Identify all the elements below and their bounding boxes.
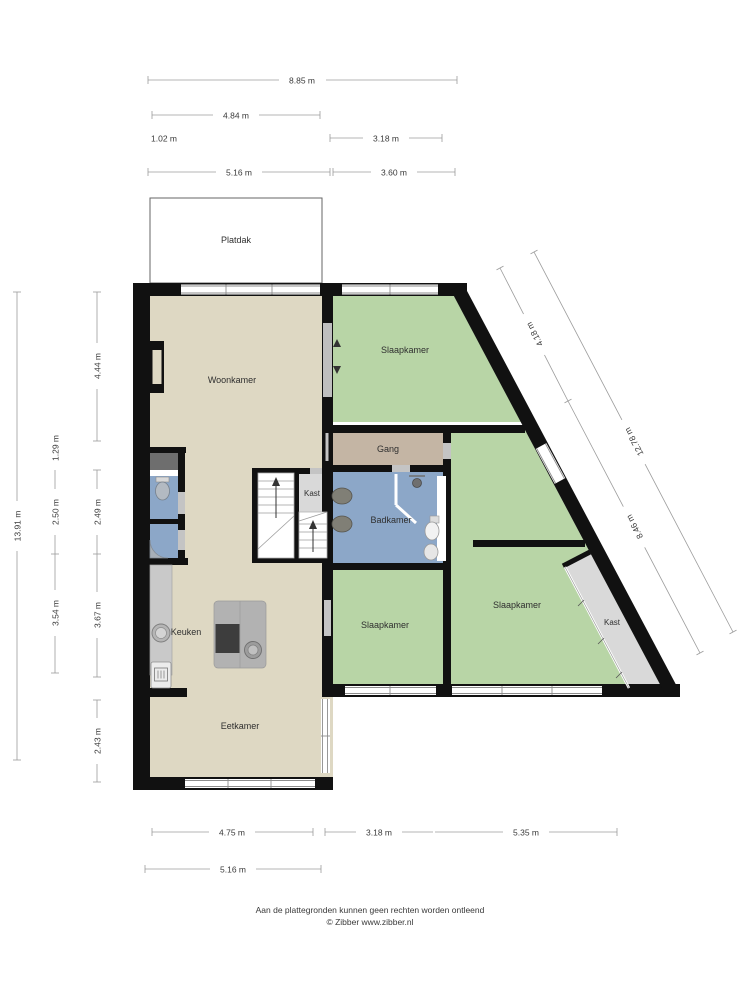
- dimension: 4.75 m: [152, 826, 313, 838]
- utility-closet-dark: [150, 452, 180, 470]
- toilet-icon: [156, 482, 170, 500]
- svg-text:5.16 m: 5.16 m: [220, 865, 246, 875]
- dimension: 5.16 m: [148, 166, 330, 178]
- door-toilet-2: [178, 530, 185, 550]
- slaapkamer-middle-label: Slaapkamer: [361, 620, 409, 630]
- door-dining-bedroom-middle: [324, 600, 331, 636]
- door-hall-bedroom-right: [443, 443, 451, 459]
- wall-toilets-mid: [147, 519, 178, 524]
- svg-text:4.18 m: 4.18 m: [524, 320, 545, 348]
- platdak-area: Platdak: [150, 198, 322, 283]
- svg-text:3.18 m: 3.18 m: [373, 134, 399, 144]
- svg-text:4.84 m: 4.84 m: [223, 111, 249, 121]
- svg-text:2.50 m: 2.50 m: [51, 499, 61, 525]
- dimension: 3.54 m: [49, 554, 61, 673]
- svg-text:3.67 m: 3.67 m: [93, 602, 103, 628]
- wall-stairs-mid: [294, 473, 299, 558]
- dimension: 5.16 m: [145, 863, 321, 875]
- dimension: 3.18 m: [325, 826, 433, 838]
- wall-hall-bath: [327, 465, 448, 472]
- svg-text:3.18 m: 3.18 m: [366, 828, 392, 838]
- window-bedroom-right-bottom: [452, 686, 602, 695]
- dimension: 3.67 m: [91, 554, 103, 677]
- window-bedroom-top: [342, 285, 438, 295]
- footer-credit: © Zibber www.zibber.nl: [326, 917, 413, 927]
- svg-text:4.44 m: 4.44 m: [93, 353, 103, 379]
- toilet-divider-white: [150, 470, 178, 476]
- woonkamer-label: Woonkamer: [208, 375, 256, 385]
- slaapkamer-right-label: Slaapkamer: [493, 600, 541, 610]
- svg-text:1.02 m: 1.02 m: [151, 134, 177, 144]
- dimension: 2.49 m: [91, 470, 103, 554]
- wall-bath-bottom: [322, 563, 450, 570]
- keuken-label: Keuken: [171, 627, 202, 637]
- door-hall-bath: [392, 465, 410, 472]
- slaapkamer-top-label: Slaapkamer: [381, 345, 429, 355]
- dimension: 5.35 m: [435, 826, 617, 838]
- island-sink-basin: [248, 645, 258, 655]
- window-bedroom-middle-bottom: [345, 686, 436, 695]
- eetkamer-label: Eetkamer: [221, 721, 260, 731]
- wall-bedroom-top-bottom: [322, 425, 525, 433]
- dimension: 1.29 m: [49, 425, 61, 471]
- svg-text:5.35 m: 5.35 m: [513, 828, 539, 838]
- dimension: 13.91 m: [11, 292, 23, 760]
- svg-text:3.60 m: 3.60 m: [381, 168, 407, 178]
- dimensions-top: 8.85 m 4.84 m 1.02 m 3.18 m: [141, 74, 457, 178]
- cooktop-icon: [216, 624, 240, 653]
- dimension: 4.84 m: [152, 109, 320, 121]
- dimension: 4.44 m: [91, 292, 103, 441]
- wall-kitchen-stub: [147, 688, 187, 697]
- svg-text:2.49 m: 2.49 m: [93, 499, 103, 525]
- kast-right-label: Kast: [604, 618, 621, 627]
- kast-center-label: Kast: [304, 489, 321, 498]
- dimension: 8.85 m: [148, 74, 457, 86]
- window-living-top: [181, 285, 320, 295]
- svg-text:5.16 m: 5.16 m: [226, 168, 252, 178]
- kitchen-sink-basin: [156, 628, 167, 639]
- footer-disclaimer: Aan de plattegronden kunnen geen rechten…: [256, 905, 485, 915]
- svg-text:8.85 m: 8.85 m: [289, 76, 315, 86]
- svg-text:4.75 m: 4.75 m: [219, 828, 245, 838]
- wall-stairs-left: [252, 473, 258, 562]
- sliding-door-living-bedroom: [323, 323, 332, 397]
- window-dining-right-glass: [321, 699, 330, 773]
- dimension: 3.60 m: [333, 166, 455, 178]
- platdak-label: Platdak: [221, 235, 252, 245]
- svg-text:13.91 m: 13.91 m: [13, 511, 23, 542]
- dimensions-left: 13.91 m 4.44 m 1.29 m: [11, 292, 103, 782]
- footer: Aan de plattegronden kunnen geen rechten…: [256, 905, 485, 927]
- chimney-inset: [153, 350, 162, 384]
- door-toilet-1: [178, 492, 185, 514]
- floorplan-canvas: Platdak: [0, 0, 750, 1000]
- svg-text:2.43 m: 2.43 m: [93, 728, 103, 754]
- wall-left: [133, 283, 150, 790]
- bidet-icon: [424, 544, 438, 560]
- sink-icon: [332, 516, 352, 532]
- svg-text:3.54 m: 3.54 m: [51, 600, 61, 626]
- svg-text:8.46 m: 8.46 m: [624, 513, 645, 541]
- kitchen-counter: [150, 565, 172, 675]
- sink-icon: [332, 488, 352, 504]
- gang-label: Gang: [377, 444, 399, 454]
- dimension: 2.43 m: [91, 700, 103, 782]
- toilet-icon: [425, 522, 439, 540]
- dimension: 2.50 m: [49, 470, 61, 554]
- shower-drain-icon: [413, 479, 422, 488]
- toilet-tank-icon: [156, 477, 169, 482]
- wall-toilets-bottom: [140, 558, 188, 565]
- window-dining-bottom: [185, 779, 315, 788]
- svg-text:1.29 m: 1.29 m: [51, 435, 61, 461]
- wall-bedroom-right-stub: [473, 540, 585, 547]
- dimension: 1.02 m: [141, 132, 187, 144]
- badkamer-label: Badkamer: [370, 515, 411, 525]
- door-closet-center: [310, 468, 322, 474]
- dimensions-bottom: 4.75 m 3.18 m 5.35 m 5.16 m: [145, 826, 617, 875]
- dimension: 3.18 m: [330, 132, 442, 144]
